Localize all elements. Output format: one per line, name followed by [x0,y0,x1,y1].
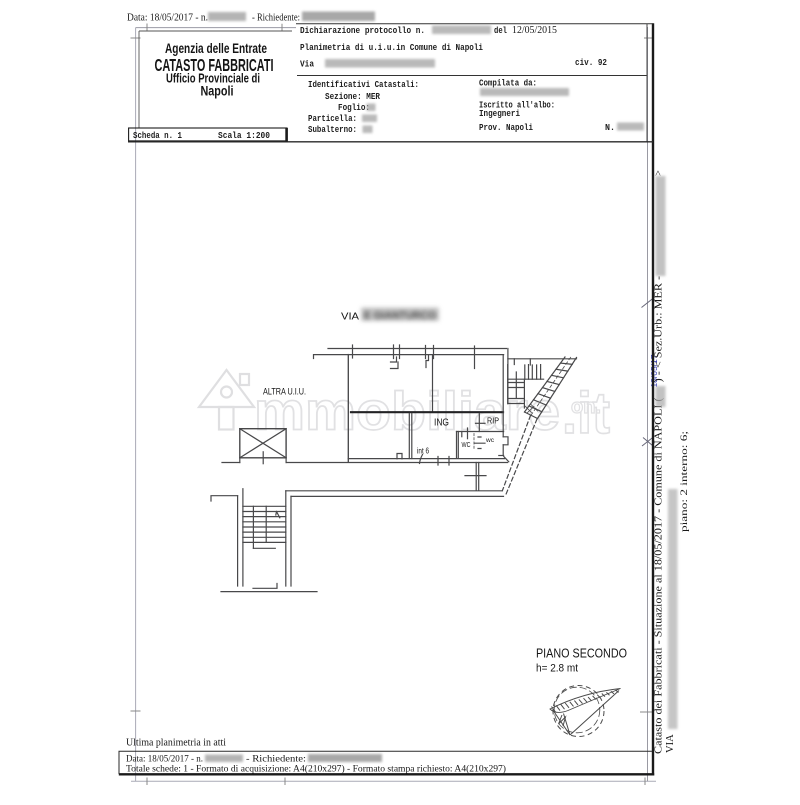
svg-text:Data: 18/05/2017 - n.: Data: 18/05/2017 - n. [126,755,203,765]
svg-text:Ultima planimetria in atti: Ultima planimetria in atti [126,738,226,749]
svg-text:Data: 18/05/2017 - n.: Data: 18/05/2017 - n. [127,12,208,24]
svg-text:Compilata da:: Compilata da: [479,79,537,89]
svg-text:piano: 2 interno: 6;: piano: 2 interno: 6; [680,431,690,532]
svg-text:Prov. Napoli: Prov. Napoli [479,123,533,133]
svg-text:12/05/2015: 12/05/2015 [512,24,557,36]
svg-text:Via: Via [300,60,315,70]
svg-text:Totale schede: 1 - Formato di: Totale schede: 1 - Formato di acquisizio… [126,764,506,775]
svg-text:Planimetria di u.i.u.in Comune: Planimetria di u.i.u.in Comune di Napoli [300,43,483,53]
svg-text:civ. 92: civ. 92 [575,58,607,68]
svg-text:RIP: RIP [487,416,499,426]
svg-text:wc: wc [485,437,495,444]
svg-text:N.: N. [605,123,615,133]
svg-text:>: > [654,170,665,176]
svg-text:Scheda n. 1: Scheda n. 1 [133,130,182,141]
svg-text:- Richiedente:: - Richiedente: [252,12,300,24]
svg-text:Identificativi Catastali:: Identificativi Catastali: [308,80,419,90]
svg-text:Agenzia delle Entrate: Agenzia delle Entrate [165,41,267,56]
svg-text:Subalterno:: Subalterno: [308,125,357,135]
svg-text:PIANO SECONDO: PIANO SECONDO [536,646,627,661]
svg-text:del: del [494,26,507,36]
svg-text:Particella:: Particella: [308,114,357,124]
svg-text:int 6: int 6 [417,446,429,456]
svg-text:h= 2.8 mt: h= 2.8 mt [536,663,578,675]
svg-text:Scala 1:200: Scala 1:200 [218,130,270,141]
svg-text:Ingegneri: Ingegneri [479,109,521,119]
svg-text:ING: ING [434,417,449,429]
svg-text:Foglio:: Foglio: [338,103,370,113]
svg-text:E GIANTURCO: E GIANTURCO [364,311,436,322]
svg-text:- Richiedente:: - Richiedente: [246,755,306,765]
svg-text:Catasto dei Fabbricati - Situa: Catasto dei Fabbricati - Situazione al 1… [654,275,665,754]
svg-text:Dichiarazione protocollo n.: Dichiarazione protocollo n. [300,26,425,36]
svg-text:VIA: VIA [341,311,359,323]
svg-text:on.: on. [571,396,601,418]
svg-text:Sezione: MER: Sezione: MER [325,92,381,102]
svg-text:Napoli: Napoli [201,84,234,99]
svg-text:VIA: VIA [665,734,676,753]
svg-text:ALTRA U.I.U.: ALTRA U.I.U. [263,387,306,397]
svg-text:WC: WC [462,442,471,449]
